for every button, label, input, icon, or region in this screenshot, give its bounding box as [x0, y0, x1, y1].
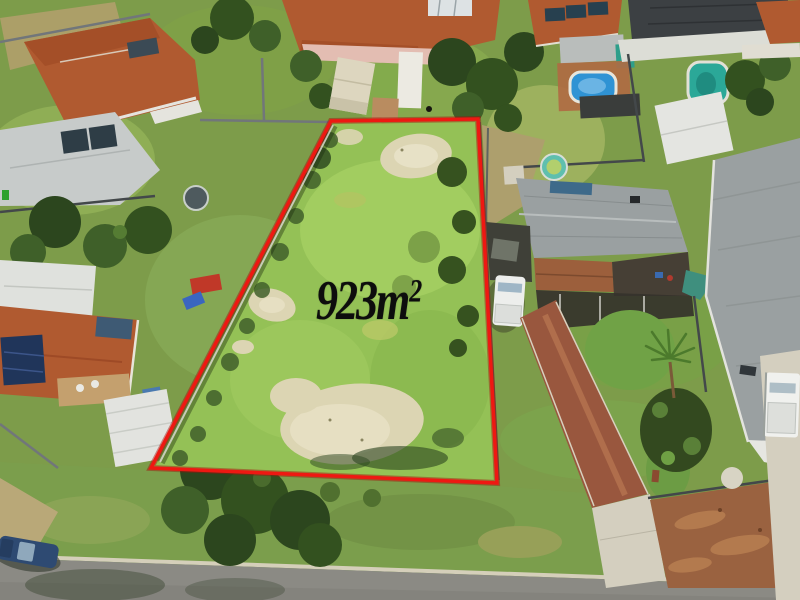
dog: [426, 106, 432, 112]
area-label: 923m2: [316, 272, 421, 329]
solar-water-heater: [550, 181, 593, 195]
round-slab: [721, 467, 743, 489]
trampoline: [541, 154, 567, 180]
solar-panel: [89, 124, 118, 149]
trailer: [491, 238, 520, 261]
solar-panel: [61, 128, 90, 153]
area-value: 923m: [316, 269, 408, 332]
solar-water-heater: [95, 316, 133, 339]
water-tank: [184, 186, 208, 210]
solar-pv-array: [0, 335, 45, 386]
dark-patio: [579, 93, 640, 118]
roof-vent: [630, 196, 640, 203]
wheelie-bin: [2, 190, 9, 200]
area-superscript: 2: [409, 272, 422, 309]
letterbox: [651, 470, 659, 483]
white-screen-panel: [397, 52, 423, 109]
aerial-photo: 923m2: [0, 0, 800, 600]
white-ute: [764, 372, 800, 437]
pergola: [559, 34, 624, 63]
